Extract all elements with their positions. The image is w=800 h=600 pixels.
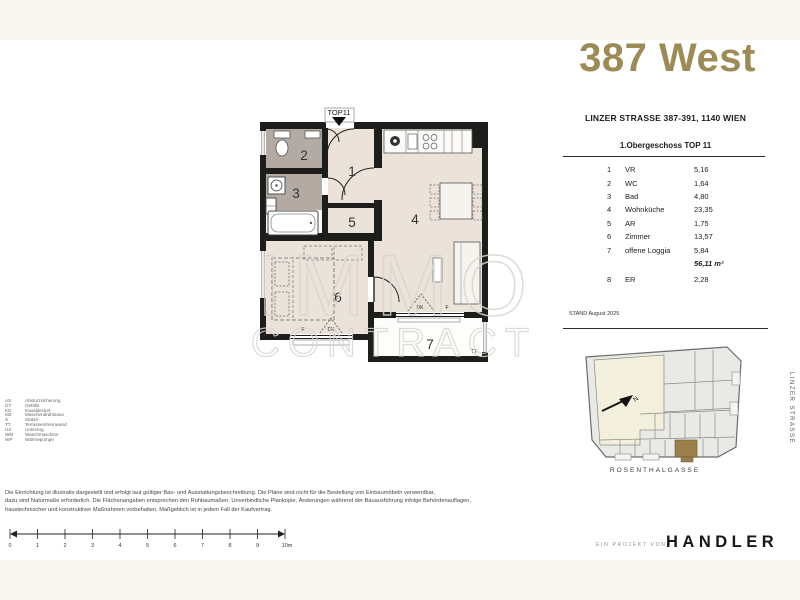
unit-label: TOP11 — [327, 108, 350, 117]
disclaimer-line: dazu sind Naturmaße erforderlich. Die Fl… — [5, 497, 505, 505]
room-number: 2 — [607, 179, 625, 188]
table-row: 3Bad4,80 — [563, 190, 768, 203]
floor-title: 1.Obergeschoss TOP 11 — [563, 141, 768, 150]
site-map: N LINZER STRASSE ROSENTHALGASSE — [575, 344, 800, 476]
room-number: 8 — [607, 275, 625, 284]
room-number: 6 — [607, 232, 625, 241]
watermark-line1: IMMO — [257, 238, 539, 334]
room-number: 1 — [607, 165, 625, 174]
room-area: 2,28 — [694, 275, 709, 284]
room-label-4: 4 — [411, 212, 419, 227]
scale-label: 9 — [256, 543, 259, 549]
legend-label: Wärmepumpe — [25, 437, 54, 442]
floorplan-page: 387 West LINZER STRASSE 387-391, 1140 WI… — [0, 0, 800, 600]
table-row: 8ER2,28 — [563, 273, 768, 286]
room-name: WC — [625, 179, 694, 188]
divider-line — [563, 156, 765, 157]
abbreviation-legend: ASAbsturzsicherung GTGefälle KDKanaldeck… — [5, 398, 67, 442]
scale-label: 10m — [282, 543, 293, 549]
site-buildings — [586, 347, 741, 462]
disclaimer-line: Die Einrichtung ist illustrativ dargeste… — [5, 489, 505, 497]
room-number: 7 — [607, 246, 625, 255]
street-label-linzer: LINZER STRASSE — [788, 372, 794, 444]
room-table: 1VR5,16 2WC1,64 3Bad4,80 4Wohnküche23,35… — [563, 163, 768, 286]
scale-label: 4 — [118, 543, 121, 549]
watermark-line2: CONTRACT — [251, 321, 537, 365]
page-title: 387 West — [560, 36, 775, 81]
disclaimer-line: haustechnischer und konstruktiver Maßnah… — [5, 506, 505, 514]
floor-plan: 1 2 3 4 5 6 7 TOP11 DK F F DK TT IMMO CO… — [240, 100, 545, 380]
scale-label: 6 — [173, 543, 176, 549]
table-row: 5AR1,75 — [563, 217, 768, 230]
room-area: 23,35 — [694, 205, 713, 214]
scale-label: 8 — [228, 543, 231, 549]
room-name: Bad — [625, 192, 694, 201]
room-area: 5,16 — [694, 165, 709, 174]
disclaimer-text: Die Einrichtung ist illustrativ dargeste… — [5, 489, 505, 514]
room-area: 5,84 — [694, 246, 709, 255]
room-name: ER — [625, 275, 694, 284]
scale-label: 2 — [63, 543, 66, 549]
table-row: 6Zimmer13,57 — [563, 230, 768, 243]
room-area: 1,64 — [694, 179, 709, 188]
address-line: LINZER STRASSE 387-391, 1140 WIEN — [563, 113, 768, 123]
room-name: Zimmer — [625, 232, 694, 241]
divider-line — [563, 328, 768, 329]
brand-logo: HANDLER — [666, 533, 778, 552]
scale-label: 0 — [8, 543, 11, 549]
table-total-row: 56,11 m² — [563, 257, 768, 270]
room-number: 5 — [607, 219, 625, 228]
scale-label: 1 — [36, 543, 39, 549]
room-name: Wohnküche — [625, 205, 694, 214]
room-number: 4 — [607, 205, 625, 214]
project-byline: EIN PROJEKT VON — [596, 542, 667, 548]
watermark: IMMO CONTRACT — [251, 238, 539, 365]
room-area: 4,80 — [694, 192, 709, 201]
scale-label: 7 — [201, 543, 204, 549]
legend-row: WPWärmepumpe — [5, 437, 67, 442]
legend-abbr: WP — [5, 437, 25, 442]
street-label-rosenthalgasse: ROSENTHALGASSE — [610, 467, 700, 474]
plan-date-note: STAND August 2025 — [569, 311, 619, 317]
table-row: 7offene Loggia5,84 — [563, 243, 768, 256]
room-label-2: 2 — [300, 148, 308, 163]
highlighted-unit — [675, 440, 697, 457]
table-row: 2WC1,64 — [563, 176, 768, 189]
room-name: AR — [625, 219, 694, 228]
table-row: 4Wohnküche23,35 — [563, 203, 768, 216]
room-label-1: 1 — [348, 164, 356, 179]
room-number: 3 — [607, 192, 625, 201]
bottom-band — [0, 560, 800, 600]
room-name: offene Loggia — [625, 246, 694, 255]
scale-bar: 0 1 2 3 4 5 6 7 8 9 10m — [2, 526, 302, 550]
room-label-3: 3 — [292, 186, 300, 201]
table-row: 1VR5,16 — [563, 163, 768, 176]
top-band — [0, 0, 800, 40]
room-name: VR — [625, 165, 694, 174]
scale-label: 3 — [91, 543, 94, 549]
room-label-5: 5 — [348, 215, 356, 230]
total-area: 56,11 m² — [694, 259, 723, 268]
room-area: 13,57 — [694, 232, 713, 241]
scale-label: 5 — [146, 543, 149, 549]
room-area: 1,75 — [694, 219, 709, 228]
